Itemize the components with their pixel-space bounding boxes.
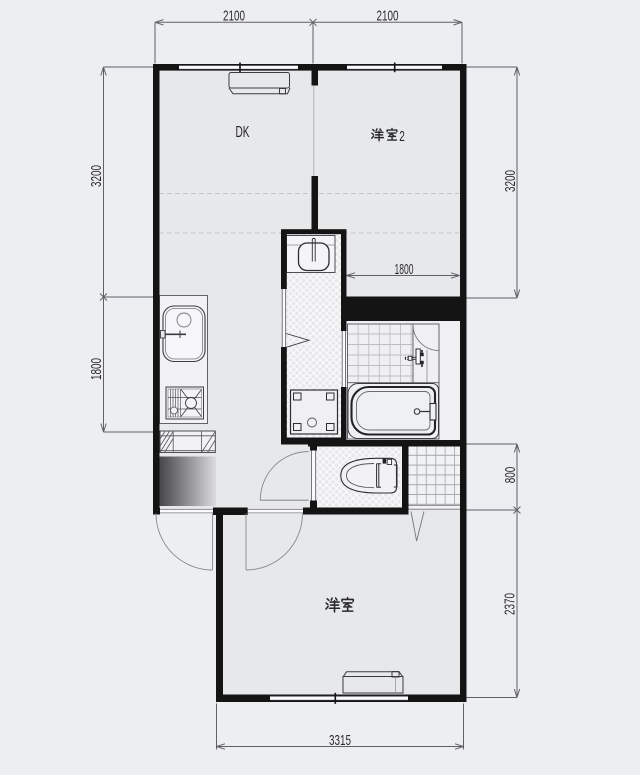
svg-text:1800: 1800	[395, 261, 414, 278]
svg-text:2100: 2100	[223, 8, 245, 25]
svg-text:3200: 3200	[88, 165, 105, 187]
svg-text:DK: DK	[236, 124, 250, 141]
svg-text:1800: 1800	[88, 358, 105, 380]
svg-text:800: 800	[502, 467, 519, 484]
svg-text:2: 2	[399, 129, 405, 145]
svg-text:3200: 3200	[502, 170, 519, 192]
svg-text:2370: 2370	[502, 593, 519, 615]
svg-text:2100: 2100	[377, 8, 399, 25]
svg-text:3315: 3315	[329, 732, 351, 749]
